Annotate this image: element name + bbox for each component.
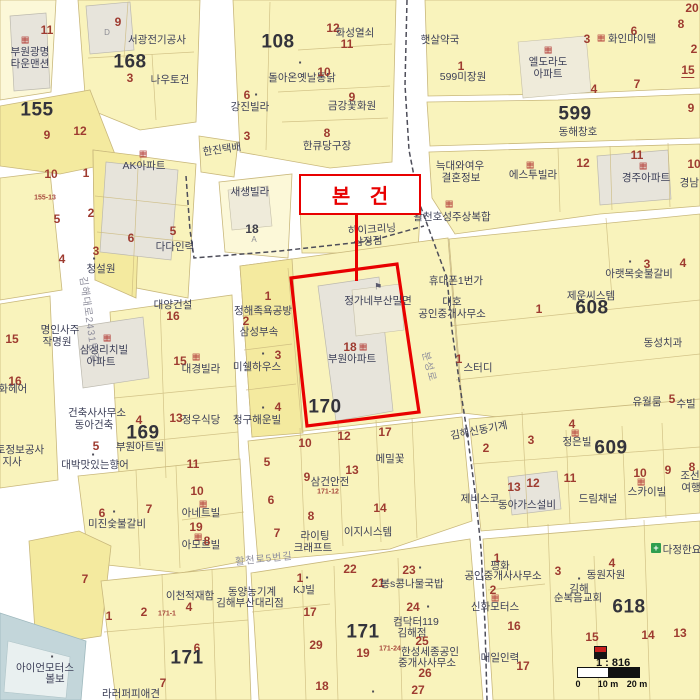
place-label: 미진숯불갈비 bbox=[88, 519, 146, 530]
place-label: 작명원 bbox=[43, 337, 72, 348]
place-label: 이지시스템 bbox=[344, 527, 392, 538]
annotation: A bbox=[251, 236, 256, 244]
place-label: 엘도라도 bbox=[529, 57, 568, 68]
place-label: 순복음교회 bbox=[554, 593, 602, 604]
building-icon: ▪ bbox=[113, 508, 116, 516]
lot-number: 1 bbox=[106, 610, 113, 622]
parcel-number: 168 bbox=[113, 53, 146, 72]
lot-number: 4 bbox=[591, 83, 598, 95]
lot-number: 18 bbox=[343, 341, 356, 353]
parcel-number: 171 bbox=[170, 649, 203, 668]
lot-number: 27 bbox=[411, 684, 424, 696]
lot-number: 15 bbox=[5, 333, 18, 345]
lot-number: 4 bbox=[609, 557, 616, 569]
lot-number: 12 bbox=[526, 477, 539, 489]
place-label: 대경빌라 bbox=[182, 364, 221, 375]
place-label: 599미장원 bbox=[440, 72, 487, 83]
parcel-number: 155 bbox=[20, 101, 53, 120]
building-icon: ▪ bbox=[51, 653, 54, 661]
place-label: 서광전기공사 bbox=[128, 35, 186, 46]
place-label: 대박맛있는향어 bbox=[61, 460, 129, 471]
place-label: 건축사사무소 bbox=[68, 408, 126, 419]
lot-number: 7 bbox=[82, 573, 89, 585]
callout-leader-line bbox=[355, 215, 358, 281]
lot-number: 9 bbox=[304, 471, 311, 483]
place-label: 활천호성주상복합 bbox=[413, 212, 490, 223]
lot-number: 13 bbox=[673, 627, 686, 639]
lot-number: 14 bbox=[641, 629, 654, 641]
apartment-icon: ▦ bbox=[445, 200, 454, 209]
parcel-number: 171 bbox=[346, 623, 379, 642]
lot-number: 6 bbox=[268, 494, 275, 506]
sub-lot-number: 171-24 bbox=[379, 646, 401, 653]
parcel-number: 608 bbox=[575, 299, 608, 318]
apartment-icon: ▦ bbox=[192, 353, 201, 362]
building-icon: ▪ bbox=[255, 91, 258, 99]
lot-number: 16 bbox=[507, 620, 520, 632]
lot-number: 3 bbox=[244, 130, 251, 142]
lot-number: 13 bbox=[169, 412, 182, 424]
lot-number: 11 bbox=[187, 458, 200, 470]
place-label: 휴대폰1번가 bbox=[429, 276, 483, 287]
place-label: 부원아파트 bbox=[328, 354, 376, 365]
place-label: 동성치과 bbox=[644, 338, 683, 349]
apartment-icon: ▦ bbox=[103, 334, 112, 343]
place-label: 한성세종공인 bbox=[401, 647, 459, 658]
place-label: 드림채널 bbox=[579, 494, 618, 505]
parcel-number: 169 bbox=[126, 424, 159, 443]
place-label: 청설원 bbox=[87, 264, 116, 275]
place-label: 크래프트 bbox=[294, 543, 333, 554]
place-label: 정은빌 bbox=[563, 437, 592, 448]
lot-number: 3 bbox=[584, 33, 591, 45]
place-label: 공인중개사무소 bbox=[418, 309, 486, 320]
lot-number: 13 bbox=[345, 464, 358, 476]
apartment-icon: ▦ bbox=[21, 36, 30, 45]
place-label: 유월룸 bbox=[633, 397, 662, 408]
place-label: 제비스코 bbox=[461, 494, 500, 505]
place-label: 삼성부속 bbox=[240, 327, 279, 338]
lot-number: 14 bbox=[373, 502, 386, 514]
scale-tick-20m: 20 m bbox=[627, 679, 648, 689]
flag-icon: ⚑ bbox=[374, 283, 382, 292]
lot-number: 8 bbox=[324, 127, 331, 139]
lot-number: 10 bbox=[687, 158, 700, 170]
lot-number: 9 bbox=[44, 129, 51, 141]
place-label: 스터디 bbox=[464, 363, 493, 374]
lot-number: 7 bbox=[634, 78, 641, 90]
lot-number: 4 bbox=[680, 257, 687, 269]
apartment-icon: ▦ bbox=[544, 46, 553, 55]
lot-number: 10 bbox=[44, 168, 57, 180]
lot-number: 2 bbox=[483, 442, 490, 454]
place-label: 동양농기계 bbox=[228, 587, 276, 598]
lot-number: 8 bbox=[678, 18, 685, 30]
lot-number: 1 bbox=[456, 353, 463, 365]
lot-number: 29 bbox=[309, 639, 322, 651]
place-label: 동해창호 bbox=[559, 127, 598, 138]
lot-number: 5 bbox=[264, 456, 271, 468]
scale-bar-segment bbox=[608, 668, 639, 677]
apartment-icon: ▦ bbox=[359, 343, 368, 352]
sub-lot-number: 171-1 bbox=[158, 611, 176, 618]
place-label: 햇살약국 bbox=[421, 35, 460, 46]
place-label: 볼보 bbox=[45, 674, 64, 685]
place-label: KJ빌 bbox=[293, 585, 315, 596]
parcel-number: 108 bbox=[261, 33, 294, 52]
lot-number: 9 bbox=[665, 464, 672, 476]
place-label: 화인마이텔 bbox=[608, 34, 656, 45]
lot-number: 12 bbox=[73, 125, 86, 137]
place-label: 명인사주 bbox=[41, 325, 80, 336]
hospital-cross-icon: + bbox=[651, 543, 661, 553]
lot-number: 18 bbox=[245, 223, 258, 235]
building-icon: ▪ bbox=[262, 404, 265, 412]
lot-number: 5 bbox=[54, 213, 61, 225]
place-label: AK아파트 bbox=[123, 161, 166, 172]
lot-number: 11 bbox=[341, 38, 354, 50]
place-label: 아이언모터스 bbox=[16, 663, 74, 674]
callout-text: 본 건 bbox=[332, 180, 395, 209]
place-label: 라러퍼피애견 bbox=[102, 689, 160, 700]
place-label: 나우토건 bbox=[151, 75, 190, 86]
place-label: 한큐당구장 bbox=[303, 141, 351, 152]
lot-number: 2 bbox=[141, 606, 148, 618]
parcel-number: 170 bbox=[308, 398, 341, 417]
lot-number: 10 bbox=[317, 66, 330, 78]
place-label: 삼정점 bbox=[353, 236, 383, 248]
place-label: 정가네부산밀면 bbox=[344, 296, 412, 307]
place-label: 동원자원 bbox=[587, 570, 626, 581]
place-label: 담화헤어 bbox=[0, 384, 27, 395]
lot-number: 1 bbox=[536, 303, 543, 315]
place-label: 대호 bbox=[442, 297, 461, 308]
lot-number: 4 bbox=[59, 253, 66, 265]
scale-tick-10m: 10 m bbox=[598, 679, 619, 689]
lot-number: 6 bbox=[244, 89, 251, 101]
lot-number: 8 bbox=[204, 535, 211, 547]
building-icon: ▪ bbox=[629, 258, 632, 266]
place-label: 토정보공사 bbox=[0, 445, 44, 456]
building-icon: ▪ bbox=[306, 574, 309, 582]
apartment-icon: ▦ bbox=[639, 162, 648, 171]
sub-lot-number: 171-12 bbox=[317, 489, 339, 496]
parcel-number: 609 bbox=[594, 439, 627, 458]
place-label: 늑대와여우 bbox=[436, 161, 484, 172]
lot-number: 11 bbox=[631, 149, 644, 161]
sub-lot-number: 155-13 bbox=[34, 195, 56, 202]
building-icon: ▪ bbox=[299, 59, 302, 67]
place-label: 컴닥터119 bbox=[393, 617, 439, 628]
place-label: 스카이빌 bbox=[628, 487, 667, 498]
place-label: 공인중개사사무소 bbox=[464, 571, 541, 582]
lot-number: 1 bbox=[297, 572, 304, 584]
place-label: 타운맨션 bbox=[11, 59, 50, 70]
subject-property-callout: 본 건 bbox=[299, 174, 421, 215]
place-label: 부원아트빌 bbox=[116, 442, 164, 453]
place-label: 메밀꽃 bbox=[376, 454, 405, 465]
place-label: 경주아파트 bbox=[622, 173, 670, 184]
lot-number: 9 bbox=[688, 102, 695, 114]
place-label: 아모르빌 bbox=[182, 540, 221, 551]
building-icon: ▪ bbox=[427, 603, 430, 611]
place-label: 에스투빌라 bbox=[509, 170, 557, 181]
place-label: 여행 bbox=[681, 483, 700, 494]
lot-number: 6 bbox=[128, 232, 135, 244]
lot-number: 7 bbox=[274, 527, 281, 539]
place-label: 아네트빌 bbox=[182, 508, 221, 519]
place-label: 정우식당 bbox=[182, 415, 221, 426]
lot-number: 8 bbox=[308, 510, 315, 522]
place-label: 아파트 bbox=[534, 69, 563, 80]
lot-number: 2 bbox=[88, 207, 95, 219]
building-icon: ▪ bbox=[372, 688, 375, 696]
lot-number: 5 bbox=[669, 393, 676, 405]
place-label: 청구해운빌 bbox=[233, 415, 281, 426]
place-label: 경남빌라 bbox=[680, 178, 700, 189]
lot-number: 1 bbox=[83, 167, 90, 179]
place-label: 동아가스설비 bbox=[498, 500, 556, 511]
lot-number: 15 bbox=[585, 631, 598, 643]
scale-bar bbox=[577, 667, 640, 678]
scale-tick-0: 0 bbox=[575, 679, 580, 689]
lot-number: 16 bbox=[166, 310, 179, 322]
lot-number: 7 bbox=[160, 677, 167, 689]
lot-number: 13 bbox=[507, 481, 520, 493]
place-label: 부원광명 bbox=[11, 47, 50, 58]
building-icon: ▪ bbox=[262, 350, 265, 358]
place-label: 미쉘하우스 bbox=[233, 362, 281, 373]
parcel-number: 618 bbox=[612, 598, 645, 617]
lot-number: 26 bbox=[418, 667, 431, 679]
place-label: 지사 bbox=[2, 457, 21, 468]
place-label: 금강꽃화원 bbox=[328, 101, 376, 112]
place-label: 동아건축 bbox=[75, 420, 114, 431]
place-label: 매일인력 bbox=[481, 653, 520, 664]
lot-number: 24 bbox=[406, 601, 419, 613]
place-label: 수빌 bbox=[676, 399, 695, 410]
lot-number: 15 bbox=[681, 64, 694, 78]
place-label: 다다인력 bbox=[156, 242, 195, 253]
lot-number: 17 bbox=[378, 426, 391, 438]
place-label: 김해부산대리점 bbox=[216, 598, 284, 609]
parcel-number: 599 bbox=[558, 105, 591, 124]
lot-number: 22 bbox=[343, 563, 356, 575]
lot-number: 3 bbox=[528, 434, 535, 446]
lot-number: 11 bbox=[564, 472, 577, 484]
lot-number: 2 bbox=[691, 43, 698, 55]
lot-number: 19 bbox=[356, 647, 369, 659]
place-label: 라이팅 bbox=[301, 531, 330, 542]
lot-number: 20 bbox=[685, 2, 698, 14]
place-label: 조선 bbox=[680, 471, 699, 482]
building-icon: ▪ bbox=[419, 564, 422, 572]
annotation: D bbox=[104, 29, 110, 37]
lot-number: 3 bbox=[127, 72, 134, 84]
lot-number: 10 bbox=[298, 437, 311, 449]
place-label: 아파트 bbox=[87, 357, 116, 368]
lot-number: 11 bbox=[41, 24, 54, 36]
place-label: 새생빌라 bbox=[231, 187, 270, 198]
place-label: 삼성리치빌 bbox=[80, 345, 128, 356]
lot-number: 5 bbox=[170, 225, 177, 237]
lot-number: 17 bbox=[516, 660, 529, 672]
lot-number: 12 bbox=[337, 430, 350, 442]
lot-number: 17 bbox=[303, 606, 316, 618]
place-label: 봉s콩나물국밥 bbox=[380, 579, 443, 590]
lot-number: 18 bbox=[315, 680, 328, 692]
apartment-icon: ▦ bbox=[139, 150, 148, 159]
lot-number: 3 bbox=[555, 565, 562, 577]
cadastral-map: 9D서광전기공사11▦부원광명타운맨션1683나우토건155155-139121… bbox=[0, 0, 700, 700]
lot-number: 10 bbox=[190, 485, 203, 497]
place-label: 결혼정보 bbox=[442, 173, 481, 184]
lot-number: 1 bbox=[265, 290, 272, 302]
place-label: 아랫목숯불갈비 bbox=[605, 269, 673, 280]
place-label: 신화모터스 bbox=[471, 602, 519, 613]
place-label: 삼건안전 bbox=[311, 477, 350, 488]
lot-number: 4 bbox=[186, 601, 193, 613]
lot-number: 12 bbox=[576, 157, 589, 169]
lot-number: 3 bbox=[275, 349, 282, 361]
lot-number: 4 bbox=[275, 401, 282, 413]
lot-number: 7 bbox=[146, 503, 153, 515]
lot-number: 9 bbox=[115, 16, 122, 28]
place-label: 다정한요 bbox=[663, 545, 700, 556]
apartment-icon: ▦ bbox=[597, 34, 606, 43]
place-label: 강진빌라 bbox=[231, 102, 270, 113]
lot-number: 23 bbox=[402, 564, 415, 576]
